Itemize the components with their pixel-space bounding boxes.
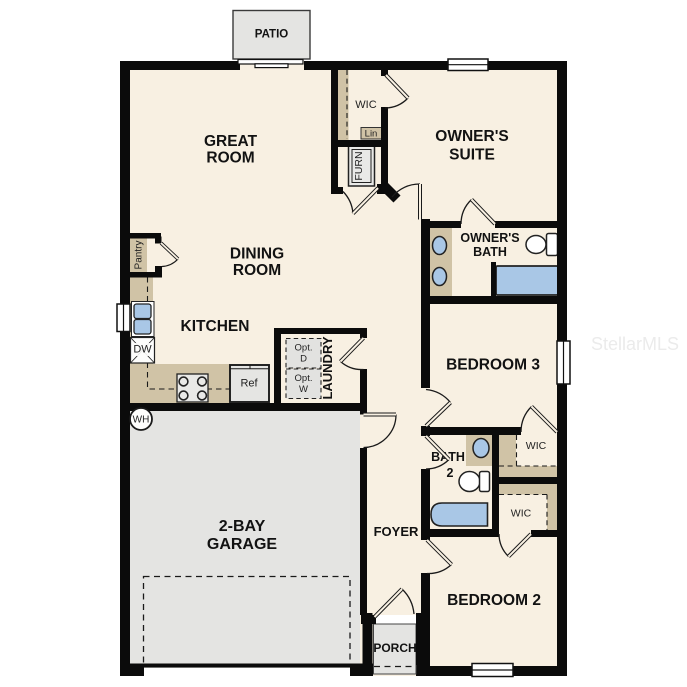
svg-text:BEDROOM 2: BEDROOM 2 [447, 592, 541, 609]
svg-text:OWNER'S: OWNER'S [460, 231, 519, 245]
svg-text:FURN: FURN [353, 151, 365, 180]
svg-text:2-BAY: 2-BAY [219, 518, 266, 535]
svg-text:Opt.: Opt. [295, 343, 313, 354]
svg-text:SUITE: SUITE [449, 147, 495, 164]
svg-text:ROOM: ROOM [233, 262, 281, 279]
svg-text:Lin: Lin [365, 129, 378, 140]
svg-text:DW: DW [133, 344, 152, 356]
svg-text:2: 2 [447, 466, 454, 480]
svg-text:W: W [299, 384, 308, 395]
svg-text:DINING: DINING [230, 246, 284, 263]
svg-text:D: D [300, 354, 307, 365]
svg-text:ROOM: ROOM [206, 150, 254, 167]
svg-text:PORCH: PORCH [373, 641, 416, 655]
svg-text:Opt.: Opt. [295, 373, 313, 384]
svg-text:WH: WH [133, 415, 150, 426]
svg-text:PATIO: PATIO [255, 29, 288, 41]
svg-text:GARAGE: GARAGE [207, 536, 278, 553]
svg-text:LAUNDRY: LAUNDRY [320, 336, 335, 399]
svg-text:BATH: BATH [473, 245, 507, 259]
svg-text:OWNER'S: OWNER'S [435, 128, 508, 145]
svg-text:GREAT: GREAT [204, 133, 258, 150]
svg-text:KITCHEN: KITCHEN [181, 318, 250, 335]
svg-text:Ref: Ref [240, 378, 258, 390]
svg-text:WIC: WIC [526, 440, 547, 452]
svg-text:WIC: WIC [511, 508, 532, 520]
svg-text:WIC: WIC [355, 99, 376, 111]
svg-text:StellarMLS: StellarMLS [591, 334, 679, 354]
svg-text:Pantry: Pantry [134, 241, 145, 270]
svg-text:FOYER: FOYER [374, 524, 419, 539]
svg-text:BEDROOM 3: BEDROOM 3 [446, 357, 540, 374]
